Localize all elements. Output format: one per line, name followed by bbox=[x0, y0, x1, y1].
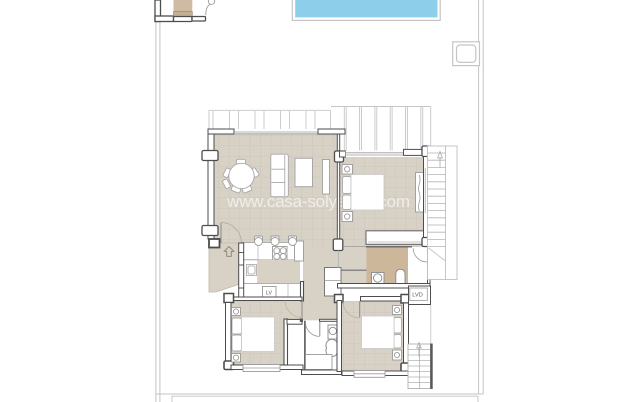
svg-text:LVD: LVD bbox=[412, 293, 422, 299]
svg-text:LV: LV bbox=[266, 291, 272, 297]
